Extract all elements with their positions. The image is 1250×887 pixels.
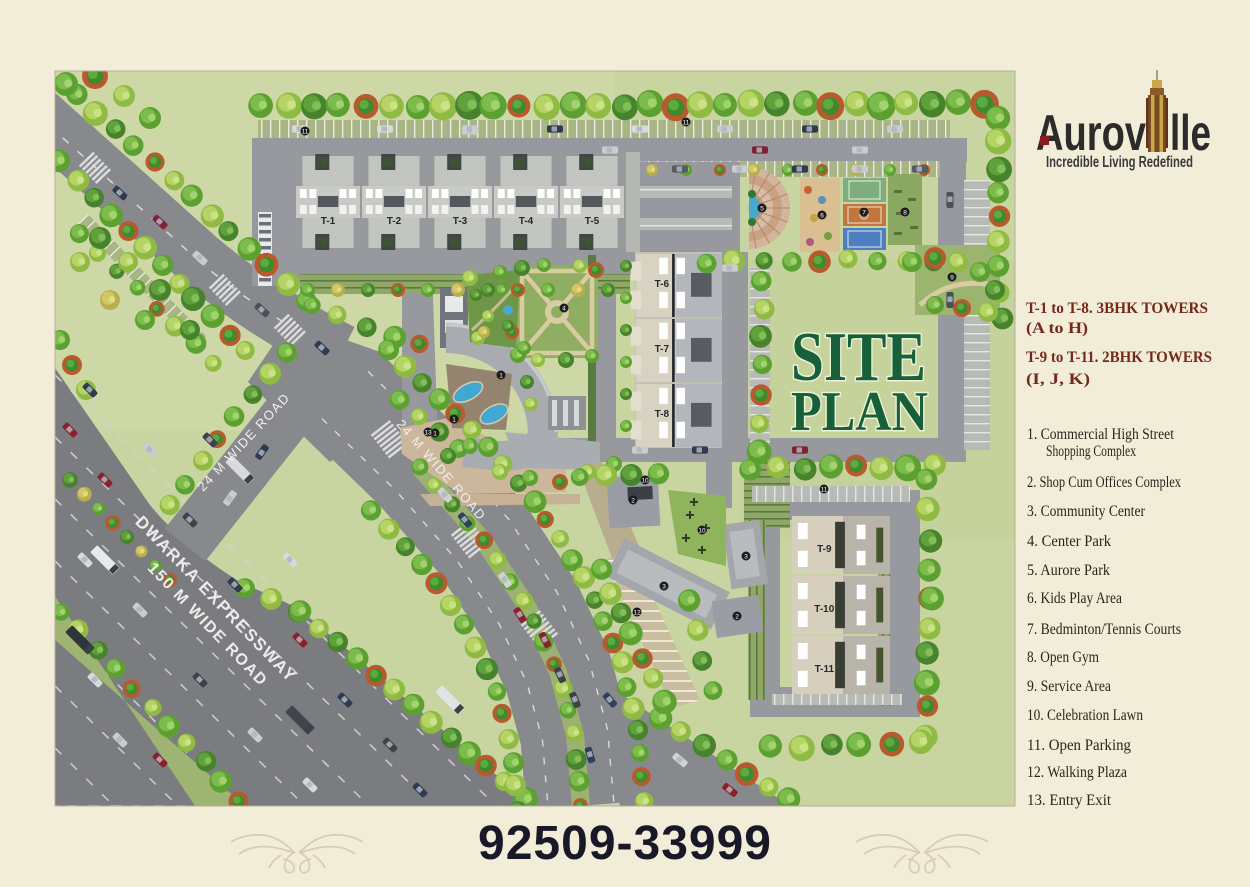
- svg-text:10: 10: [641, 478, 649, 485]
- svg-text:T-1 to T-8. 3BHK TOWERS: T-1 to T-8. 3BHK TOWERS: [1026, 300, 1208, 317]
- svg-text:Incredible Living Redefined: Incredible Living Redefined: [1046, 154, 1193, 171]
- svg-text:(I, J, K): (I, J, K): [1026, 371, 1090, 388]
- svg-text:T-7: T-7: [655, 344, 670, 355]
- svg-text:13: 13: [424, 430, 432, 437]
- svg-text:2. Shop Cum Offices Complex: 2. Shop Cum Offices Complex: [1027, 474, 1181, 491]
- svg-text:8. Open Gym: 8. Open Gym: [1027, 649, 1099, 666]
- svg-text:12. Walking Plaza: 12. Walking Plaza: [1027, 764, 1127, 781]
- svg-text:T-11: T-11: [815, 664, 835, 675]
- svg-text:T-3: T-3: [453, 216, 468, 227]
- svg-text:T-1: T-1: [321, 216, 336, 227]
- svg-text:7. Bedminton/Tennis Courts: 7. Bedminton/Tennis Courts: [1027, 621, 1181, 638]
- svg-text:3: 3: [662, 584, 666, 591]
- svg-text:T-9: T-9: [817, 544, 832, 555]
- svg-text:Aurov: Aurov: [1036, 105, 1146, 161]
- svg-text:11: 11: [683, 120, 690, 127]
- svg-text:11. Open Parking: 11. Open Parking: [1027, 737, 1131, 754]
- svg-text:7: 7: [862, 210, 866, 217]
- svg-text:1: 1: [499, 373, 503, 380]
- svg-text:(A to H): (A to H): [1026, 320, 1088, 337]
- svg-text:11: 11: [821, 487, 828, 494]
- svg-text:T-2: T-2: [387, 216, 402, 227]
- svg-text:9. Service Area: 9. Service Area: [1027, 678, 1111, 695]
- svg-text:T-10: T-10: [814, 604, 834, 615]
- svg-text:13. Entry Exit: 13. Entry Exit: [1027, 792, 1112, 809]
- svg-text:92509-33999: 92509-33999: [478, 817, 772, 870]
- svg-text:lle: lle: [1170, 105, 1211, 161]
- svg-text:T-8: T-8: [655, 409, 670, 420]
- svg-text:4: 4: [562, 306, 566, 313]
- svg-text:5: 5: [760, 206, 764, 213]
- svg-text:3. Community Center: 3. Community Center: [1027, 503, 1146, 520]
- svg-text:1: 1: [452, 417, 456, 424]
- svg-text:9: 9: [950, 275, 954, 282]
- svg-text:T-4: T-4: [519, 216, 534, 227]
- svg-text:11: 11: [302, 129, 309, 136]
- svg-text:2: 2: [735, 614, 739, 621]
- svg-text:T-6: T-6: [655, 279, 670, 290]
- svg-text:6: 6: [820, 213, 824, 220]
- svg-text:1. Commercial High Street: 1. Commercial High Street: [1027, 426, 1175, 443]
- svg-text:10. Celebration Lawn: 10. Celebration Lawn: [1027, 707, 1143, 724]
- svg-text:T-5: T-5: [585, 216, 600, 227]
- svg-text:5. Aurore Park: 5. Aurore Park: [1027, 562, 1110, 579]
- svg-text:4. Center Park: 4. Center Park: [1027, 533, 1111, 550]
- svg-text:2: 2: [631, 498, 635, 505]
- svg-text:10: 10: [698, 528, 706, 535]
- svg-text:PLAN: PLAN: [791, 381, 928, 443]
- svg-text:1: 1: [433, 431, 437, 438]
- svg-text:Shopping Complex: Shopping Complex: [1046, 443, 1136, 460]
- svg-text:T-9 to T-11. 2BHK TOWERS: T-9 to T-11. 2BHK TOWERS: [1026, 349, 1212, 366]
- svg-text:8: 8: [903, 210, 907, 217]
- svg-text:12: 12: [633, 610, 641, 617]
- svg-text:3: 3: [744, 554, 748, 561]
- svg-text:6. Kids Play Area: 6. Kids Play Area: [1027, 590, 1122, 607]
